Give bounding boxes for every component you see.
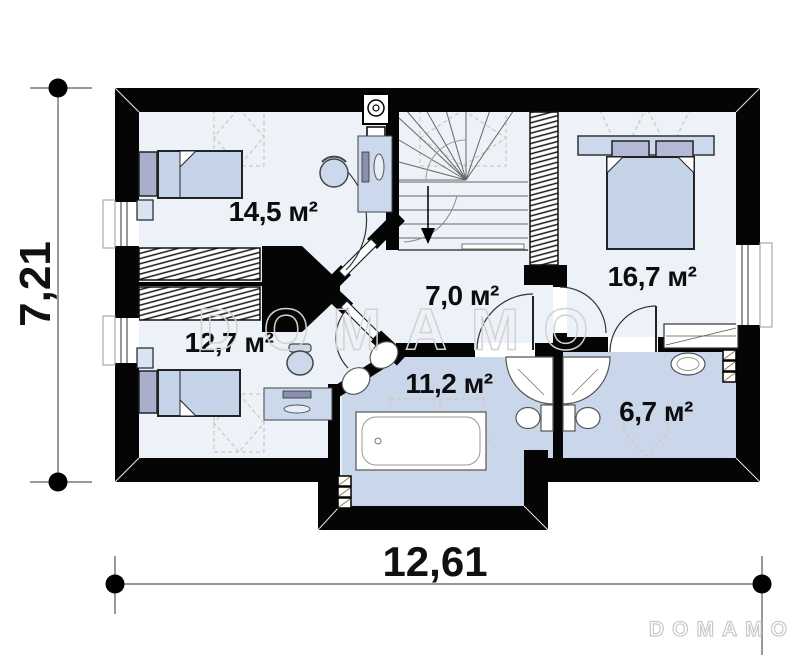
room-area-label-ensuite: 6,7 м²: [619, 396, 693, 428]
room-area-label-bedroom-1: 14,5 м²: [229, 196, 318, 228]
dim-dot: [49, 79, 68, 98]
bedroom-wardrobe: [664, 324, 738, 348]
desk-2: [264, 388, 332, 420]
boiler-icon: [368, 100, 384, 116]
room-area-label-bathroom: 11,2 м²: [405, 368, 492, 400]
watermark-text: DOMAMO: [198, 297, 613, 364]
door-gap-ensuite: [608, 337, 658, 352]
brand-logo: DOMAMO: [649, 618, 795, 642]
dimension-width-label: 12,61: [382, 538, 487, 586]
window-right: [736, 243, 772, 327]
boiler-niche: [363, 94, 389, 137]
bathtub: [356, 412, 486, 470]
dim-dot: [753, 575, 772, 594]
dim-dot: [106, 575, 125, 594]
window-left-1: [103, 200, 139, 248]
dim-dot: [49, 473, 68, 492]
dimension-height-label: 7,21: [11, 241, 61, 327]
vent-stack-2: [723, 350, 736, 382]
desk-1: [358, 136, 392, 212]
sink-ensuite: [671, 353, 705, 375]
bathrooms-divider-wall: [553, 347, 563, 460]
window-left-2: [103, 316, 139, 365]
chair-1: [320, 157, 348, 187]
floor-plan-page: 14,5 м² 12,7 м² 7,0 м² 11,2 м² 16,7 м² 6…: [0, 0, 800, 658]
toilet-bathroom: [516, 405, 553, 431]
vent-stack-1: [338, 476, 351, 508]
room-area-label-bedroom-right: 16,7 м²: [608, 261, 697, 293]
toilet-ensuite: [563, 405, 600, 431]
